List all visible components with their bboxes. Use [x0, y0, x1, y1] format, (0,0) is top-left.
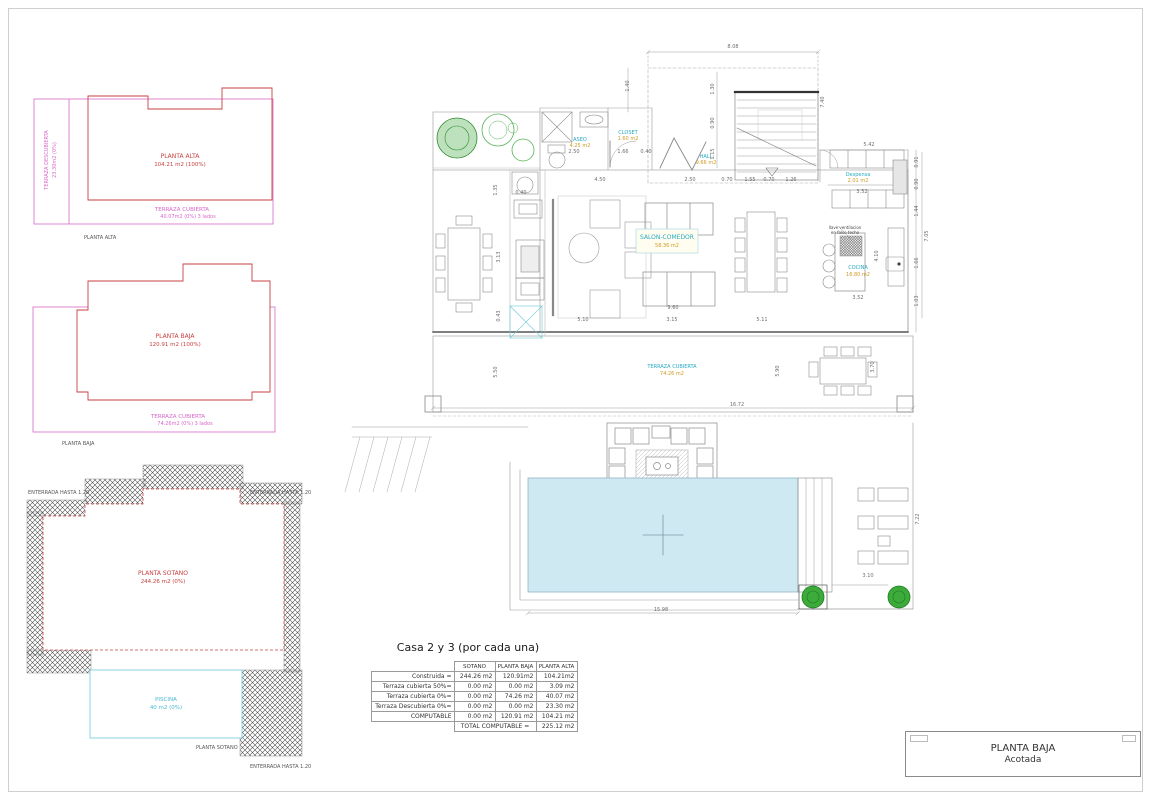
area-summary: Casa 2 y 3 (por cada una) SOTANO PLANTA … — [371, 641, 565, 732]
title-block: PLANTA BAJA Acotada — [905, 731, 1141, 777]
room-hall: HALL 9.66 m2 — [660, 138, 716, 170]
room-salon-comedor: SALON-COMEDOR 58.36 m2 — [553, 196, 787, 318]
svg-text:0.91: 0.91 — [914, 156, 920, 167]
room-cocina: llave ventilacion en falso techo Despens… — [820, 150, 907, 291]
planta-alta-area: 104.21 m2 (100%) — [154, 162, 206, 168]
svg-text:8.08: 8.08 — [727, 44, 738, 50]
svg-text:1.66: 1.66 — [617, 149, 628, 155]
summary-table: SOTANO PLANTA BAJA PLANTA ALTA Construid… — [371, 661, 578, 732]
svg-text:0.90: 0.90 — [914, 178, 920, 189]
svg-text:0.70: 0.70 — [763, 177, 774, 183]
entrance-block-outline — [648, 68, 818, 183]
terraza-cubierta-baja-area: 74.26m2 (0%) 3 lados — [157, 421, 213, 427]
svg-text:1.40: 1.40 — [625, 80, 631, 91]
tree-icon — [437, 118, 477, 158]
svg-text:3.52: 3.52 — [852, 295, 863, 301]
planta-baja-label: PLANTA BAJA — [156, 333, 196, 340]
svg-text:1.15: 1.15 — [710, 148, 716, 159]
bush-icon — [888, 586, 910, 608]
tree-planting-area — [433, 112, 540, 168]
svg-text:3.10: 3.10 — [862, 573, 873, 579]
terraza-descubierta-label: TERRAZA DESCUBIERTA — [44, 130, 50, 191]
sun-loungers — [858, 488, 908, 564]
svg-text:7.22: 7.22 — [915, 513, 921, 524]
kitchen-counters — [830, 150, 907, 286]
svg-text:4.10: 4.10 — [874, 250, 880, 261]
svg-text:16.72: 16.72 — [730, 402, 744, 408]
svg-text:0.40: 0.40 — [515, 190, 526, 196]
planta-alta-label: PLANTA ALTA — [161, 153, 201, 160]
ventilation-note-line2: en falso techo — [831, 230, 860, 235]
lounge-furniture — [553, 196, 651, 318]
summary-table-title: Casa 2 y 3 (por cada una) — [371, 641, 565, 654]
terraza-cubierta-alta-area: 40.07m2 (0%) 3 lados — [160, 214, 216, 220]
table-row-total: TOTAL COMPUTABLE = 225.12 m2 — [372, 722, 578, 732]
sofa-set — [643, 203, 715, 306]
staircase — [735, 92, 818, 180]
piscina-outline — [90, 670, 242, 738]
room-aseo: ASEO 4.25 m2 — [542, 112, 608, 168]
planta-sotano-area: 244.26 m2 (0%) — [141, 579, 186, 585]
svg-text:5.42: 5.42 — [863, 142, 874, 148]
stool-icon — [823, 276, 835, 288]
svg-text:7.05: 7.05 — [924, 230, 930, 241]
col-header-planta-alta: PLANTA ALTA — [536, 662, 577, 672]
cocina-area: 16.80 m2 — [846, 272, 870, 278]
drawing-title: PLANTA BAJA — [991, 743, 1056, 755]
planta-sotano-label: PLANTA SOTANO — [138, 570, 188, 577]
svg-text:3.70: 3.70 — [870, 361, 876, 372]
table-row: Terraza Descubierta 0%= 0.00 m2 0.00 m2 … — [372, 702, 578, 712]
diagram-planta-alta: PLANTA ALTA 104.21 m2 (100%) TERRAZA DES… — [34, 88, 273, 241]
svg-text:0.40: 0.40 — [640, 149, 651, 155]
svg-text:5.90: 5.90 — [775, 365, 781, 376]
terraza-label: TERRAZA CUBIERTA — [646, 364, 697, 370]
svg-text:9.60: 9.60 — [667, 305, 678, 311]
svg-text:4.50: 4.50 — [594, 177, 605, 183]
title-block-stamp-left — [910, 735, 928, 742]
pool-steps-right — [798, 478, 832, 592]
planta-baja-area: 120.91 m2 (100%) — [149, 342, 201, 348]
enterrada-label-top-right: ENTERRADA HASTA 1.20 — [250, 490, 311, 496]
kitchen-door-arc — [820, 150, 838, 168]
terrace-table-left — [436, 216, 492, 312]
swimming-pool — [510, 462, 913, 610]
bush-icon — [802, 586, 824, 608]
svg-text:1.66: 1.66 — [914, 257, 920, 268]
svg-text:1.26: 1.26 — [785, 177, 796, 183]
enterrada-label-bottom-right: ENTERRADA HASTA 1.20 — [250, 764, 311, 770]
kitchen-island — [823, 233, 865, 291]
svg-text:1.30: 1.30 — [710, 83, 716, 94]
svg-text:2.50: 2.50 — [568, 149, 579, 155]
svg-text:3.52: 3.52 — [856, 189, 867, 195]
planta-sotano-caption: PLANTA SOTANO — [196, 745, 238, 751]
total-value: 225.12 m2 — [536, 722, 577, 732]
title-block-stamp-right — [1122, 735, 1136, 742]
salon-area: 58.36 m2 — [655, 243, 679, 249]
table-row-computable: COMPUTABLE 0.00 m2 120.91 m2 104.21 m2 — [372, 712, 578, 722]
svg-text:1.55: 1.55 — [744, 177, 755, 183]
salon-label-box — [636, 229, 698, 253]
cocina-label: COCINA — [848, 265, 868, 271]
piscina-area: 40 m2 (0%) — [150, 705, 182, 711]
svg-text:3.13: 3.13 — [496, 251, 502, 262]
kitchen-sink — [886, 257, 904, 271]
svg-text:5.50: 5.50 — [493, 366, 499, 377]
garden-bushes — [799, 585, 910, 609]
terrace-table-right — [809, 347, 877, 395]
driveway-hatch — [345, 437, 432, 492]
salon-label: SALON-COMEDOR — [640, 234, 694, 241]
room-terraza-cubierta: TERRAZA CUBIERTA 74.26 m2 — [646, 347, 877, 395]
stair-direction-line — [737, 128, 816, 166]
terraza-cubierta-baja-label: TERRAZA CUBIERTA — [150, 414, 205, 420]
hall-area: 9.66 m2 — [696, 160, 717, 166]
svg-text:1.03: 1.03 — [914, 295, 920, 306]
stool-icon — [823, 244, 835, 256]
col-header-sotano: SOTANO — [454, 662, 495, 672]
terraza-cubierta-alta-label: TERRAZA CUBIERTA — [154, 207, 209, 213]
dining-table — [735, 212, 787, 292]
svg-text:3.15: 3.15 — [666, 317, 677, 323]
svg-text:1.44: 1.44 — [914, 205, 920, 216]
total-label: TOTAL COMPUTABLE = — [454, 722, 536, 732]
piscina-label: PISCINA — [155, 697, 177, 703]
svg-text:2.50: 2.50 — [684, 177, 695, 183]
table-row: Construida = 244.26 m2 120.91m2 104.21m2 — [372, 672, 578, 682]
svg-text:7.40: 7.40 — [820, 96, 826, 107]
terraza-descubierta-area: 23.30m2 (0%) — [52, 142, 58, 178]
main-floor-plan: ASEO 4.25 m2 CLOSET 1.60 m2 HALL 9.66 m2 — [345, 44, 930, 615]
tree-icon — [512, 139, 534, 161]
tree-icon — [482, 114, 514, 146]
svg-text:0.43: 0.43 — [496, 310, 502, 321]
table-row: Terraza cubierta 50%= 0.00 m2 0.00 m2 3.… — [372, 682, 578, 692]
svg-text:5.11: 5.11 — [756, 317, 767, 323]
enterrada-label-top-left: ENTERRADA HASTA 1.20 — [28, 490, 89, 496]
table-row: Terraza cubierta 0%= 0.00 m2 74.26 m2 40… — [372, 692, 578, 702]
table-header-row: SOTANO PLANTA BAJA PLANTA ALTA — [372, 662, 578, 672]
terraza-area: 74.26 m2 — [660, 371, 684, 377]
diagram-planta-sotano: PLANTA SOTANO 244.26 m2 (0%) PISCINA 40 … — [27, 465, 311, 770]
diagram-planta-baja: PLANTA BAJA 120.91 m2 (100%) TERRAZA CUB… — [33, 264, 275, 447]
drawing-sheet: PLANTA ALTA 104.21 m2 (100%) TERRAZA DES… — [0, 0, 1151, 800]
despensa-area: 2.01 m2 — [848, 178, 869, 184]
drawing-subtitle: Acotada — [1005, 755, 1042, 766]
column-right — [897, 396, 913, 412]
svg-text:15.98: 15.98 — [654, 607, 668, 613]
planta-baja-caption: PLANTA BAJA — [62, 441, 95, 447]
svg-text:5.10: 5.10 — [577, 317, 588, 323]
stool-icon — [823, 260, 835, 272]
svg-text:0.70: 0.70 — [721, 177, 732, 183]
closet-area: 1.60 m2 — [618, 136, 639, 142]
svg-text:1.35: 1.35 — [493, 184, 499, 195]
svg-text:0.90: 0.90 — [710, 117, 716, 128]
planta-alta-caption: PLANTA ALTA — [84, 235, 117, 241]
col-header-planta-baja: PLANTA BAJA — [495, 662, 536, 672]
